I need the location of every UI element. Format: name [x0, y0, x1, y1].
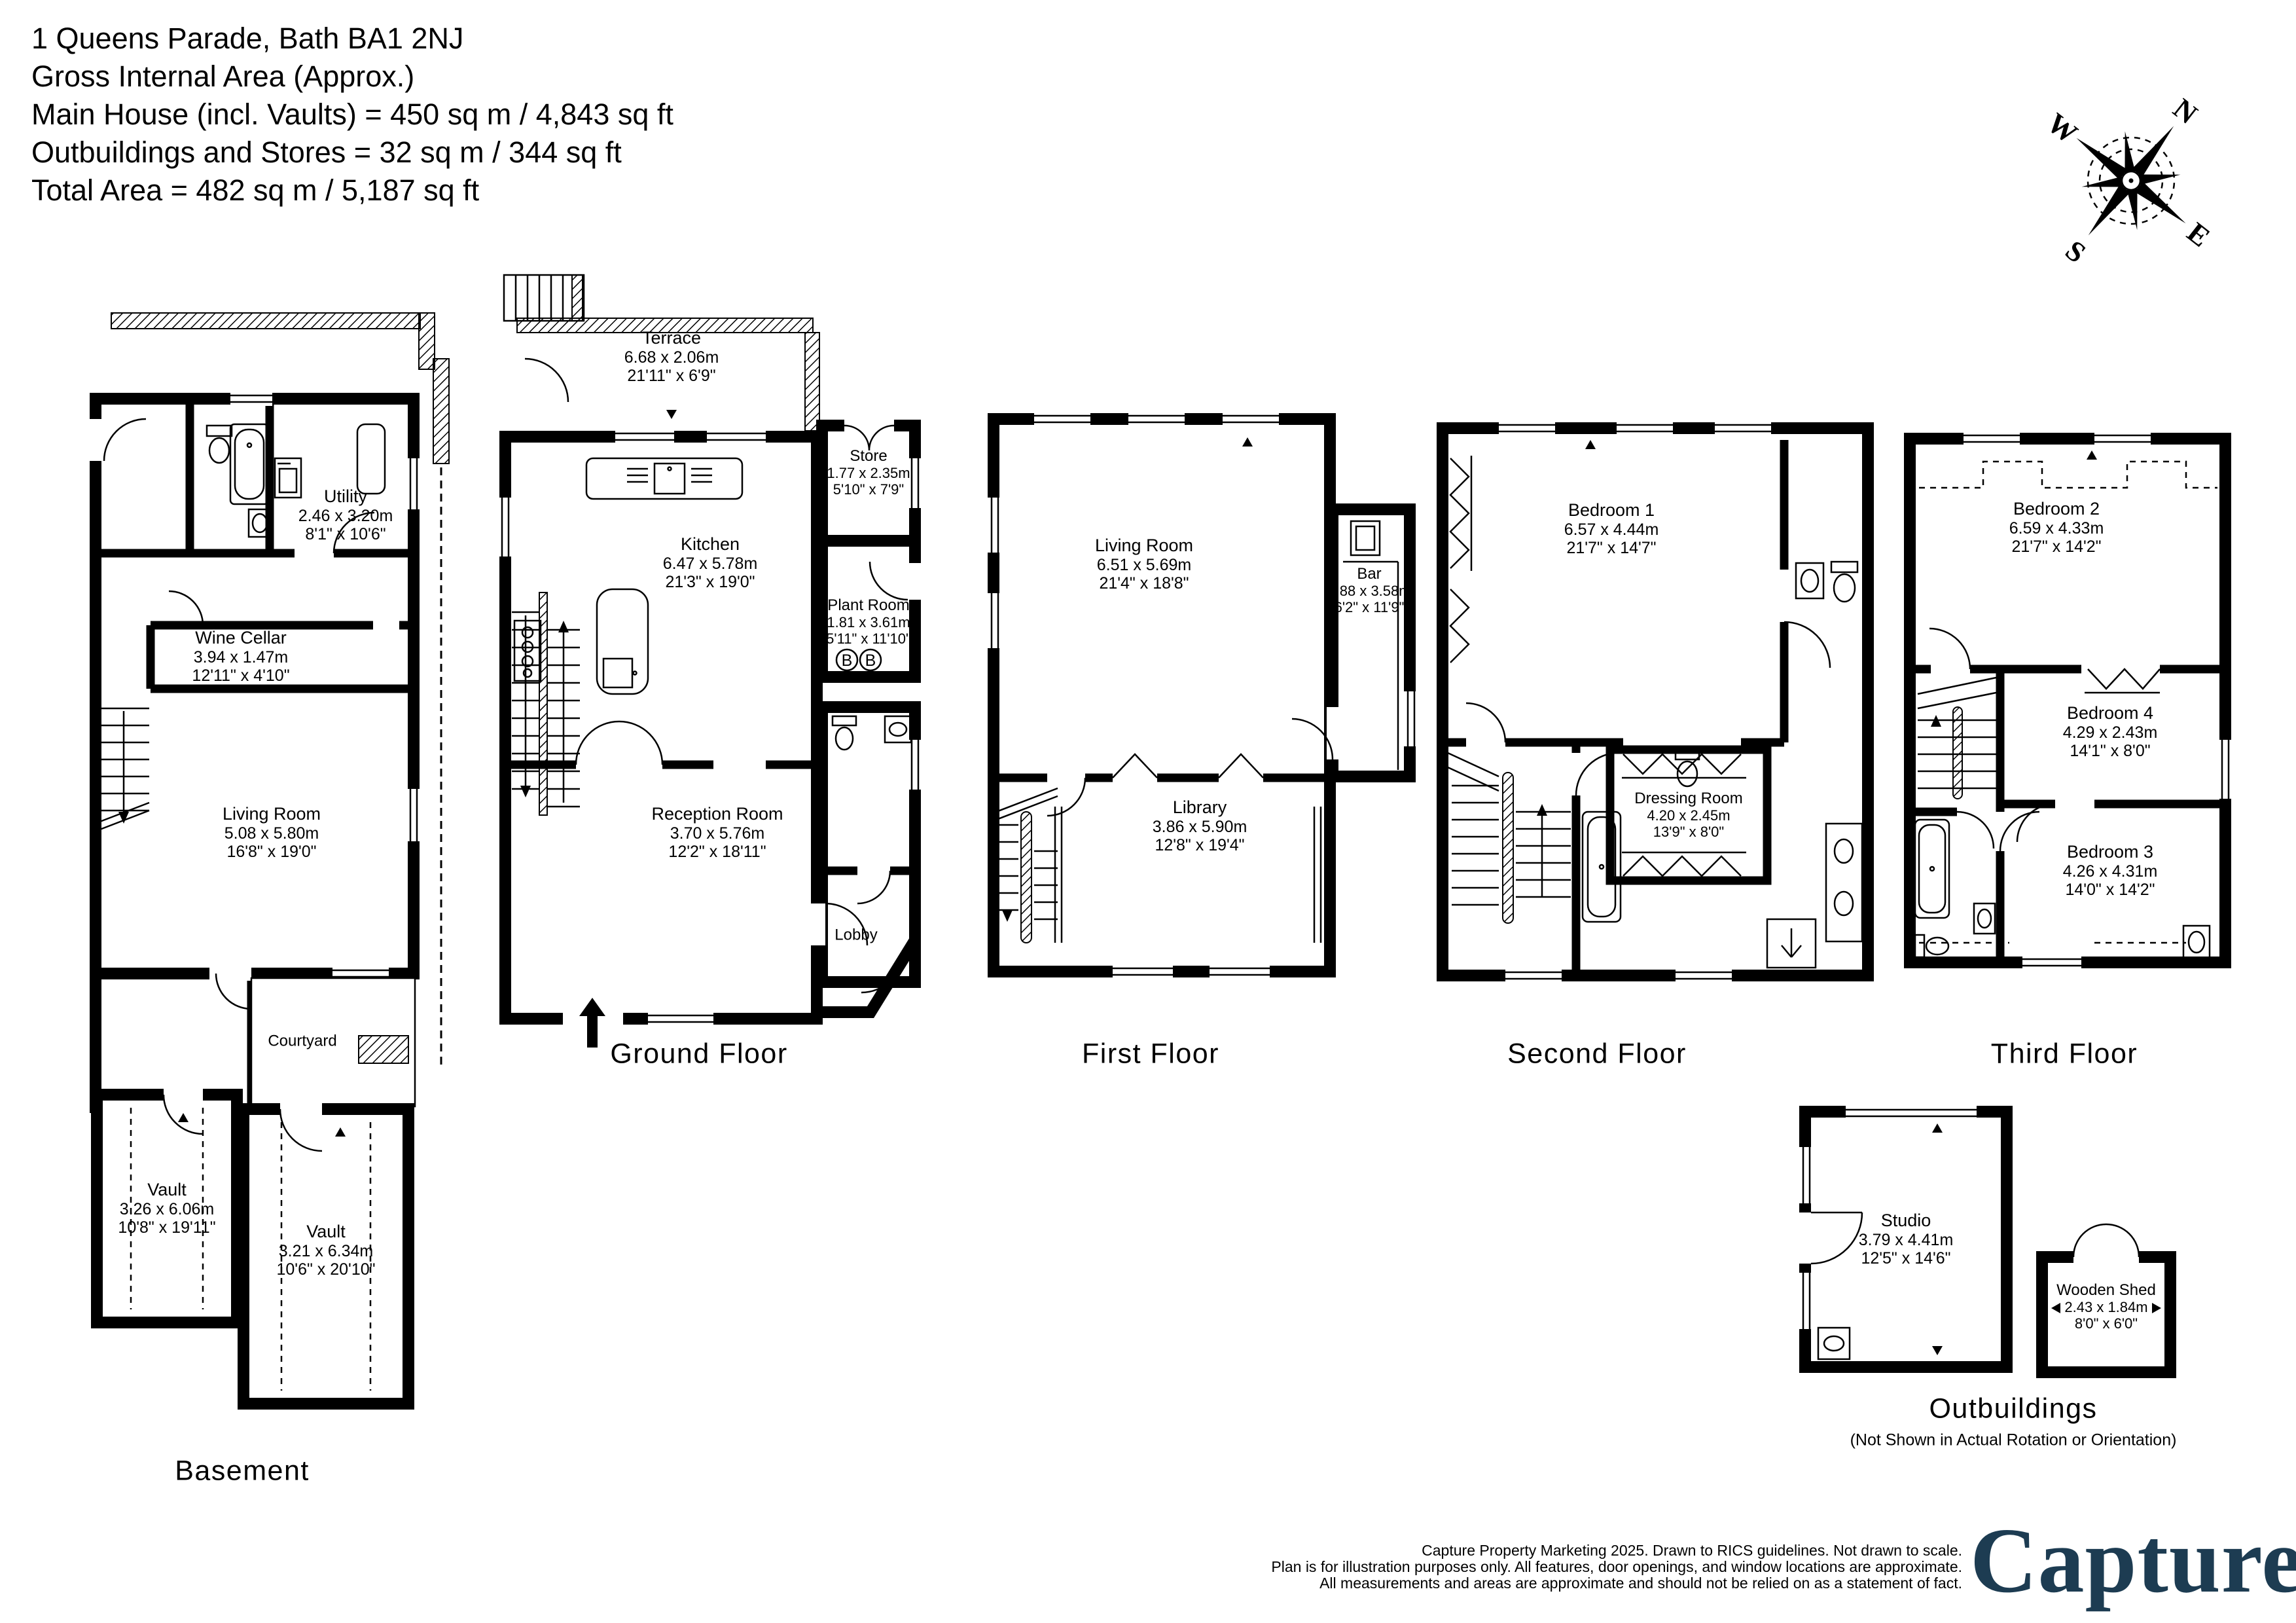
floor-title-ground: Ground Floor — [610, 1038, 787, 1070]
wardrobe-icon — [2085, 669, 2160, 693]
first-outer-wall — [994, 419, 1330, 972]
sink-icon — [885, 716, 911, 742]
sink-icon — [1818, 1328, 1850, 1359]
compass-e: E — [2181, 216, 2215, 253]
room-label-bedroom-2: Bedroom 2 6.59 x 4.33m 21'7" x 14'2" — [2009, 499, 2104, 556]
address-line: 1 Queens Parade, Bath BA1 2NJ — [31, 20, 673, 58]
room-label-studio: Studio 3.79 x 4.41m 12'5" x 14'6" — [1859, 1211, 1954, 1268]
gia-line: Gross Internal Area (Approx.) — [31, 58, 673, 96]
floor-title-outbuildings: Outbuildings — [1929, 1393, 2097, 1425]
bath-icon — [1583, 812, 1621, 922]
room-label-bedroom-1: Bedroom 1 6.57 x 4.44m 21'7" x 14'7" — [1564, 500, 1659, 558]
room-label-wooden-shed: Wooden Shed 2.43 x 1.84m 8'0" x 6'0" — [2056, 1281, 2156, 1332]
room-label-dressing-room: Dressing Room 4.20 x 2.45m 13'9" x 8'0" — [1634, 790, 1742, 841]
sink-icon — [2183, 926, 2210, 958]
toilet-icon — [1831, 562, 1857, 602]
room-label-library: Library 3.86 x 5.90m 12'8" x 19'4" — [1153, 797, 1247, 855]
room-label-vault-1: Vault 3.26 x 6.06m 10'8" x 19'11" — [118, 1180, 215, 1237]
capture-logo: Capture. — [1970, 1514, 2278, 1607]
total-area-line: Total Area = 482 sq m / 5,187 sq ft — [31, 172, 673, 210]
compass-rose-icon: N E S W — [1986, 37, 2271, 323]
shower-icon — [1767, 919, 1816, 968]
courtyard-steps — [359, 1036, 408, 1063]
room-label-plant-room: Plant Room 1.81 x 3.61m 5'11" x 11'10" — [826, 596, 911, 647]
door-arc — [1811, 1213, 1862, 1264]
room-label-kitchen: Kitchen 6.47 x 5.78m 21'3" x 19'0" — [663, 534, 758, 592]
room-label-vault-2: Vault 3.21 x 6.34m 10'6" x 20'10" — [276, 1222, 375, 1279]
ground-outer-wall — [505, 437, 817, 1019]
room-label-store: Store 1.77 x 2.35m 5'10" x 7'9" — [827, 447, 910, 498]
floor-title-second: Second Floor — [1507, 1038, 1687, 1070]
floorplan-canvas: N E S W — [0, 0, 2296, 1623]
stairs-icon — [512, 593, 580, 815]
compass-s: S — [2060, 234, 2092, 270]
stairs-icon — [996, 788, 1058, 943]
door-arc — [1047, 778, 1085, 816]
svg-text:B: B — [842, 651, 853, 670]
floor-title-basement: Basement — [175, 1455, 310, 1487]
bath-icon — [1915, 820, 1949, 918]
svg-text:B: B — [865, 651, 876, 670]
washing-machine-icon — [275, 458, 301, 498]
room-label-utility: Utility 2.46 x 3.20m 8'1" x 10'6" — [298, 486, 393, 544]
stairs-icon — [98, 708, 149, 830]
room-label-wine-cellar: Wine Cellar 3.94 x 1.47m 12'11" x 4'10" — [192, 628, 289, 685]
room-label-courtyard: Courtyard — [268, 1032, 336, 1049]
disclaimer-line-1: Capture Property Marketing 2025. Drawn t… — [1113, 1542, 1962, 1559]
outbuildings-area-line: Outbuildings and Stores = 32 sq m / 344 … — [31, 134, 673, 172]
vanity-sinks-icon — [1826, 824, 1862, 941]
toilet-icon — [833, 716, 856, 750]
bar-sink-icon — [1351, 521, 1380, 555]
sink-icon — [1796, 563, 1823, 598]
lightwell-hatch — [111, 313, 420, 329]
room-label-first-living-room: Living Room 6.51 x 5.69m 21'4" x 18'8" — [1095, 536, 1193, 593]
main-house-area-line: Main House (incl. Vaults) = 450 sq m / 4… — [31, 96, 673, 134]
disclaimer-block: Capture Property Marketing 2025. Drawn t… — [1113, 1542, 1962, 1592]
room-label-bedroom-4: Bedroom 4 4.29 x 2.43m 14'1" x 8'0" — [2063, 703, 2158, 761]
bath-icon — [230, 424, 268, 504]
disclaimer-line-2: Plan is for illustration purposes only. … — [1113, 1559, 1962, 1575]
floor-title-first: First Floor — [1082, 1038, 1219, 1070]
disclaimer-line-3: All measurements and areas are approxima… — [1113, 1575, 1962, 1592]
header-block: 1 Queens Parade, Bath BA1 2NJ Gross Inte… — [31, 20, 673, 210]
double-door-arc — [576, 721, 662, 765]
capture-logo-text: Capture — [1970, 1508, 2296, 1612]
room-label-basement-living-room: Living Room 5.08 x 5.80m 16'8" x 19'0" — [223, 804, 321, 862]
door-arc — [525, 359, 568, 402]
room-label-reception-room: Reception Room 3.70 x 5.76m 12'2" x 18'1… — [651, 804, 783, 862]
outbuildings-plan — [1799, 1106, 2170, 1372]
door-arc — [1929, 629, 2055, 851]
toilet-icon — [207, 426, 232, 463]
toilet-icon — [1915, 935, 1948, 957]
counter — [357, 424, 385, 494]
room-label-terrace: Terrace 6.68 x 2.06m 21'11" x 6'9" — [624, 328, 719, 386]
sink-icon — [1974, 903, 1995, 934]
compass-w: W — [2041, 107, 2084, 150]
stairs-icon — [1448, 753, 1571, 923]
room-label-bar: Bar 1.88 x 3.58m 6'2" x 11'9" — [1327, 565, 1410, 616]
compass-n: N — [2167, 92, 2203, 130]
first-floor-plan — [988, 412, 1418, 979]
floorplan-page: { "header": { "line1": "1 Queens Parade,… — [0, 0, 2296, 1623]
window — [988, 412, 1418, 979]
room-label-bedroom-3: Bedroom 3 4.26 x 4.31m 14'0" x 14'2" — [2063, 842, 2158, 900]
floor-title-third: Third Floor — [1991, 1038, 2138, 1070]
room-label-lobby: Lobby — [834, 926, 877, 943]
fridge-icon — [597, 589, 648, 694]
kitchen-island — [586, 458, 742, 499]
boiler-badge: B B — [836, 649, 881, 670]
outbuildings-note: (Not Shown in Actual Rotation or Orienta… — [1850, 1431, 2177, 1450]
stairs-icon — [1918, 678, 1996, 799]
